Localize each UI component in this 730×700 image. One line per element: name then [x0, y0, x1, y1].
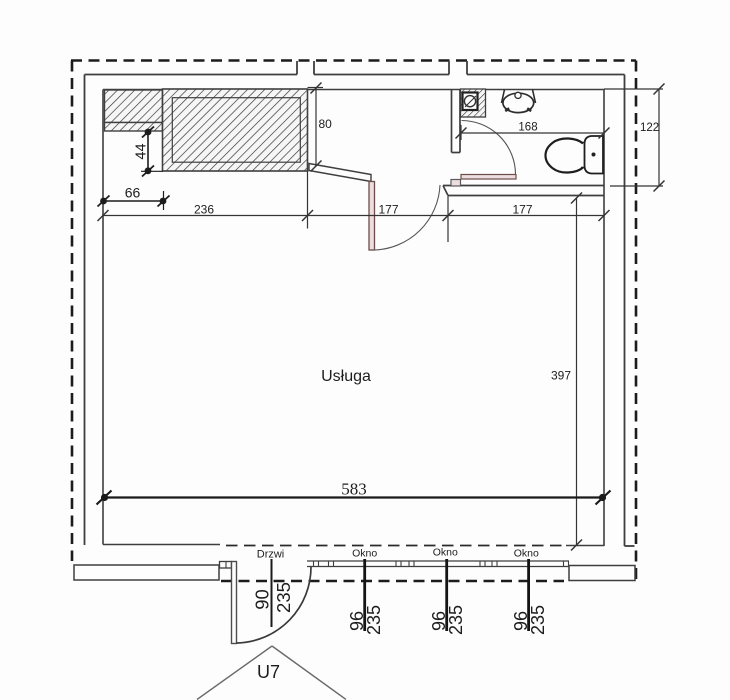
svg-text:66: 66 [125, 185, 141, 201]
svg-text:235: 235 [446, 605, 466, 635]
svg-text:236: 236 [194, 203, 214, 217]
svg-text:177: 177 [512, 203, 532, 217]
svg-text:Okno: Okno [352, 548, 377, 560]
svg-text:122: 122 [640, 122, 659, 134]
svg-text:583: 583 [341, 480, 367, 499]
svg-text:80: 80 [319, 117, 333, 131]
svg-text:177: 177 [378, 203, 398, 217]
svg-text:Okno: Okno [514, 548, 539, 560]
svg-text:Usługa: Usługa [321, 368, 371, 385]
svg-text:Okno: Okno [433, 547, 458, 559]
svg-text:Drzwi: Drzwi [257, 549, 285, 561]
svg-text:168: 168 [518, 122, 537, 134]
svg-text:U7: U7 [257, 662, 280, 682]
svg-text:90: 90 [252, 589, 273, 610]
svg-text:235: 235 [364, 605, 384, 635]
svg-text:235: 235 [528, 605, 548, 635]
svg-text:44: 44 [134, 143, 150, 159]
svg-text:397: 397 [551, 369, 571, 383]
svg-text:235: 235 [273, 582, 294, 613]
